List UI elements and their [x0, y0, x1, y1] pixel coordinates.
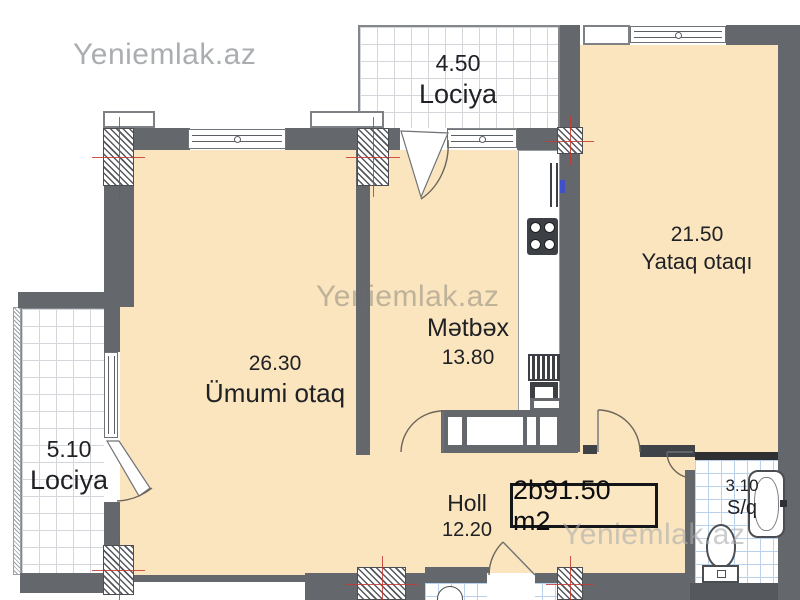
- living-room-area: 26.30: [249, 351, 302, 377]
- label-kitchen: Mətbəx 13.80: [398, 310, 538, 374]
- faucet-icon: [780, 500, 787, 507]
- column: [557, 567, 583, 600]
- bedroom-name: Yataq otaqı: [642, 248, 753, 276]
- entry-door-opening: [487, 573, 535, 600]
- wall: [690, 583, 778, 600]
- label-bathroom: 3.10 S/q: [704, 474, 780, 522]
- label-bedroom: 21.50 Yataq otaqı: [612, 214, 782, 284]
- kitchen-name: Mətbəx: [427, 313, 509, 344]
- bedroom-window: [630, 26, 726, 43]
- wall: [640, 445, 695, 457]
- toilet-button-icon: [717, 570, 726, 578]
- column: [103, 545, 134, 595]
- kitchen-window: [447, 129, 517, 148]
- column: [557, 127, 583, 154]
- cabinet-cell: [467, 417, 523, 445]
- washing-machine-icon: [437, 586, 463, 600]
- hall-area: 12.20: [442, 518, 492, 543]
- living-room-name: Ümumi otaq: [205, 377, 345, 410]
- counter-end-cell: [534, 401, 559, 408]
- bathroom-area: 3.10: [725, 475, 758, 496]
- cabinet-cell: [448, 417, 462, 445]
- wall: [517, 128, 560, 150]
- kitchen-area: 13.80: [442, 345, 495, 371]
- cabinet-cell: [540, 417, 557, 445]
- wall: [18, 292, 104, 308]
- bedroom-area: 21.50: [671, 222, 724, 248]
- toilet-icon: [706, 524, 736, 568]
- stove-icon: [527, 218, 558, 255]
- bathroom-name: S/q: [727, 496, 757, 521]
- label-balcony-top: 4.50 Lociya: [360, 38, 556, 122]
- balcony-top-area: 4.50: [436, 49, 481, 78]
- plumbing-mark: [560, 180, 565, 193]
- fridge-icon: [556, 163, 558, 207]
- wall: [133, 575, 307, 582]
- wall: [130, 128, 190, 150]
- label-balcony-left: 5.10 Lociya: [10, 426, 128, 506]
- fridge-icon: [550, 163, 552, 207]
- kitchen-balcony-door-opening: [400, 128, 447, 150]
- wall: [560, 25, 580, 452]
- ledge: [103, 111, 155, 128]
- ledge: [583, 25, 630, 45]
- wall: [685, 470, 695, 583]
- wall: [104, 292, 120, 352]
- hall-name: Holl: [447, 489, 487, 518]
- wall: [695, 452, 778, 460]
- floor-plan: 4.50 Lociya 21.50 Yataq otaqı Mətbəx 13.…: [0, 0, 800, 600]
- column: [357, 567, 406, 600]
- wall: [20, 573, 104, 593]
- balcony-left-name: Lociya: [30, 464, 108, 498]
- total-area-box: 2b91.50 m2: [510, 483, 658, 528]
- cabinet-cell: [527, 417, 536, 445]
- balcony-top-name: Lociya: [419, 78, 497, 112]
- column: [357, 128, 389, 186]
- label-living-room: 26.30 Ümumi otaq: [168, 344, 382, 416]
- wall: [583, 445, 597, 454]
- wall: [425, 567, 490, 575]
- total-area-label: 2b91.50 m2: [513, 475, 655, 537]
- living-room-window: [188, 129, 286, 149]
- balcony-left-area: 5.10: [47, 435, 92, 464]
- column: [103, 128, 134, 186]
- watermark: Yeniemlak.az: [73, 38, 256, 72]
